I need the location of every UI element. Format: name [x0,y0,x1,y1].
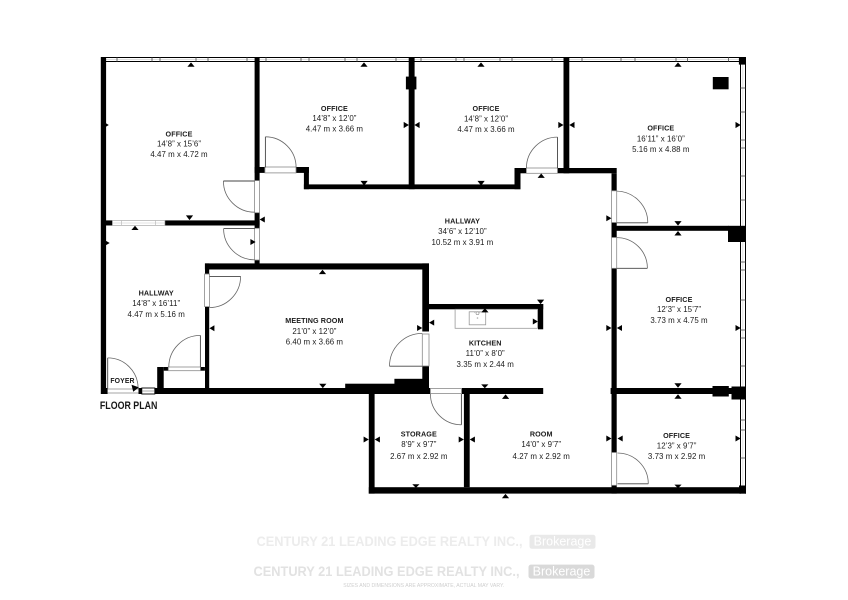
svg-text:11’0” x 8’0”: 11’0” x 8’0” [466,349,505,358]
svg-text:SIZES AND DIMENSIONS ARE APPRO: SIZES AND DIMENSIONS ARE APPROXIMATE, AC… [343,583,504,589]
svg-text:21’0” x 12’0”: 21’0” x 12’0” [292,327,336,336]
svg-text:CENTURY 21 LEADING EDGE REALTY: CENTURY 21 LEADING EDGE REALTY INC., [254,564,520,579]
svg-text:KITCHEN: KITCHEN [469,338,502,347]
svg-text:14’8” x 12’0”: 14’8” x 12’0” [312,114,356,123]
svg-text:OFFICE: OFFICE [666,295,693,304]
svg-text:3.73 m x 2.92 m: 3.73 m x 2.92 m [648,452,706,461]
svg-text:OFFICE: OFFICE [663,431,690,440]
svg-text:4.47 m x 5.16 m: 4.47 m x 5.16 m [128,310,186,319]
svg-text:8’9” x 9’7”: 8’9” x 9’7” [401,440,437,449]
svg-text:3.73 m x 4.75 m: 3.73 m x 4.75 m [650,316,708,325]
svg-text:16’11” x 16’0”: 16’11” x 16’0” [637,134,685,143]
svg-text:10.52 m x 3.91 m: 10.52 m x 3.91 m [432,238,494,247]
svg-text:HALLWAY: HALLWAY [445,216,480,225]
svg-text:6.40 m x 3.66 m: 6.40 m x 3.66 m [286,338,344,347]
svg-text:STORAGE: STORAGE [401,430,437,439]
svg-text:4.47 m x 3.66 m: 4.47 m x 3.66 m [457,125,515,134]
svg-text:Brokerage: Brokerage [534,535,592,549]
svg-text:FOYER: FOYER [110,378,134,385]
svg-text:MEETING ROOM: MEETING ROOM [285,316,343,325]
svg-text:14’8” x 15’6”: 14’8” x 15’6” [157,140,201,149]
svg-text:12’3” x 9’7”: 12’3” x 9’7” [657,442,697,451]
svg-text:OFFICE: OFFICE [166,130,193,139]
svg-text:4.47 m x 4.72 m: 4.47 m x 4.72 m [150,150,208,159]
svg-text:OFFICE: OFFICE [473,104,500,113]
svg-text:2.67 m x 2.92 m: 2.67 m x 2.92 m [390,452,448,461]
svg-text:CENTURY 21 LEADING EDGE REALTY: CENTURY 21 LEADING EDGE REALTY INC., [257,534,523,549]
svg-text:HALLWAY: HALLWAY [139,289,174,298]
svg-text:4.27 m x 2.92 m: 4.27 m x 2.92 m [513,452,571,461]
svg-text:12’3” x 15’7”: 12’3” x 15’7” [657,305,701,314]
svg-text:14’8” x 12’0”: 14’8” x 12’0” [464,114,508,123]
svg-text:14’8” x 16’11”: 14’8” x 16’11” [132,299,180,308]
svg-text:Brokerage: Brokerage [533,564,591,578]
svg-text:OFFICE: OFFICE [647,124,674,133]
svg-text:34’6” x 12’10”: 34’6” x 12’10” [438,227,487,236]
svg-text:14’0” x 9’7”: 14’0” x 9’7” [521,440,561,449]
svg-text:ROOM: ROOM [530,430,553,439]
svg-text:FLOOR PLAN: FLOOR PLAN [100,400,157,412]
svg-text:5.16 m x 4.88 m: 5.16 m x 4.88 m [632,145,690,154]
svg-text:4.47 m x 3.66 m: 4.47 m x 3.66 m [306,125,364,134]
svg-text:3.35 m x 2.44 m: 3.35 m x 2.44 m [457,360,515,369]
svg-text:OFFICE: OFFICE [321,104,348,113]
